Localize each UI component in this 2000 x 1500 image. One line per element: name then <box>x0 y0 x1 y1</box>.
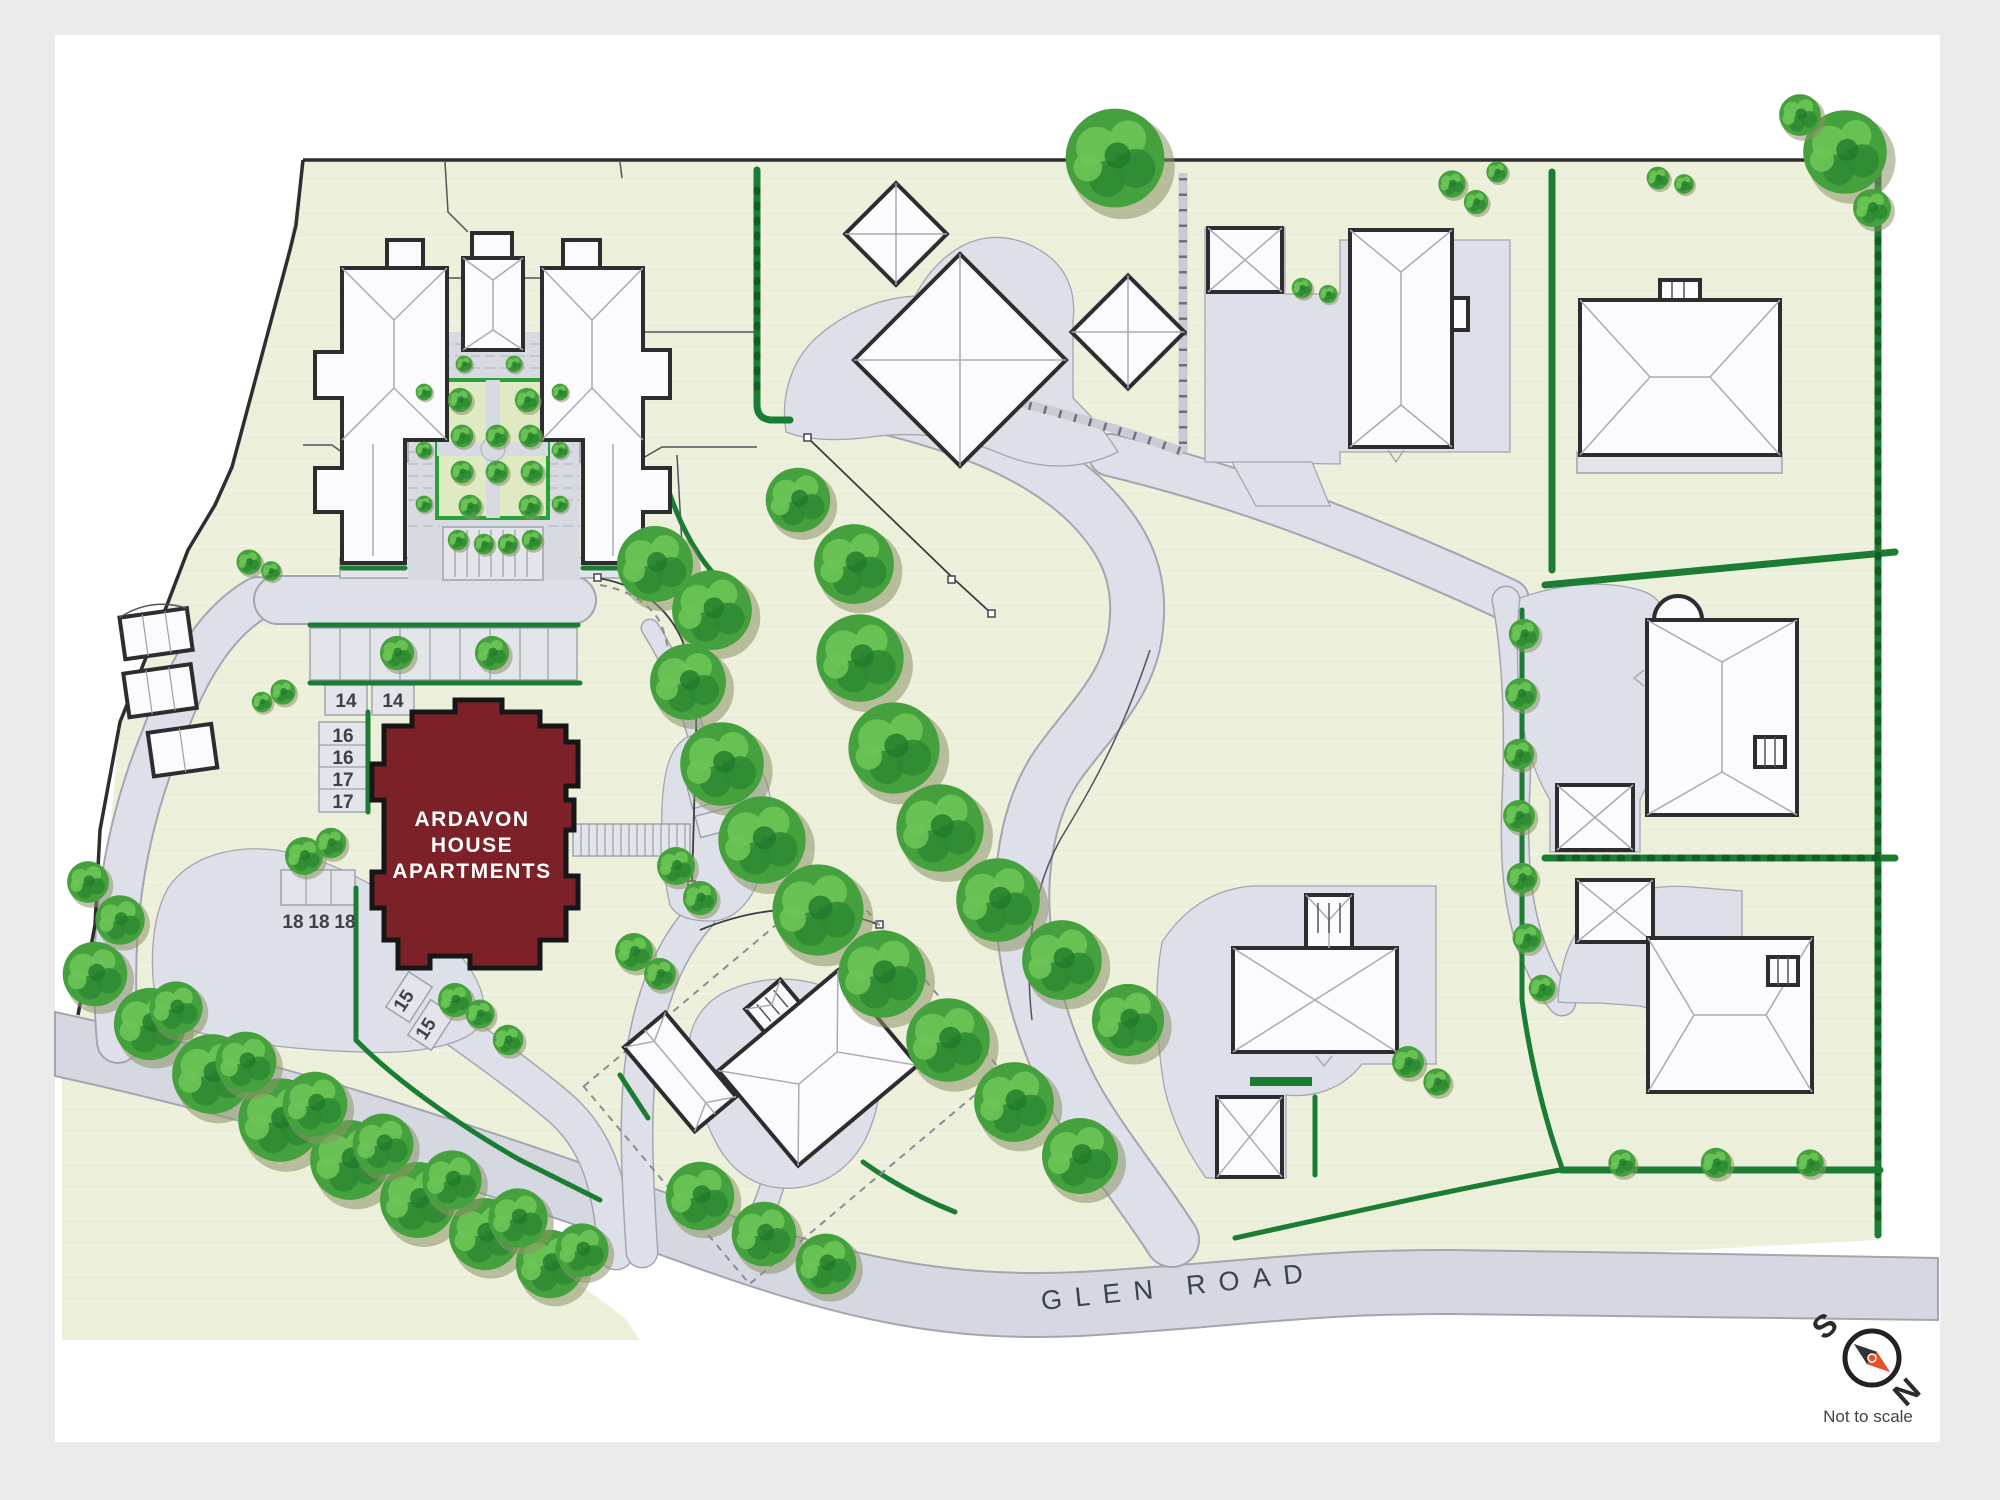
plot-label-18b: 18 <box>308 912 329 933</box>
garage-7 <box>1217 1097 1282 1177</box>
garage-6 <box>1577 880 1653 942</box>
scale-note: Not to scale <box>1823 1407 1913 1426</box>
house-5 <box>1634 596 1797 815</box>
parking-row-top <box>310 628 577 680</box>
plot-label-16a: 16 <box>332 726 353 747</box>
garage-5 <box>1557 785 1633 850</box>
ardavon-label-line3: APARTMENTS <box>392 860 551 883</box>
house-2 <box>1350 230 1468 462</box>
plot-label-18c: 18 <box>334 912 355 933</box>
apartment-block-center-chimney <box>472 233 512 258</box>
site-plan-page: > > <box>0 0 2000 1500</box>
ardavon-label-line1: ARDAVON <box>414 808 529 831</box>
ardavon-house-building: ARDAVON HOUSE APARTMENTS <box>372 700 578 968</box>
house-3 <box>1580 280 1780 455</box>
apartment-block-west-chimney <box>387 240 423 268</box>
plot-label-17b: 17 <box>332 792 353 813</box>
plot-label-14a: 14 <box>335 691 357 712</box>
garage-2 <box>1208 228 1282 292</box>
ardavon-label-line2: HOUSE <box>431 834 513 857</box>
plot-label-16b: 16 <box>332 748 353 769</box>
site-plan-svg: > > <box>0 0 2000 1500</box>
plot-label-14b: 14 <box>382 691 404 712</box>
plot-label-17a: 17 <box>332 770 353 791</box>
house-6 <box>1648 938 1812 1092</box>
plot-label-18a: 18 <box>282 912 303 933</box>
apartment-block-east-chimney <box>563 240 600 268</box>
hedge-bar <box>1250 1077 1312 1086</box>
